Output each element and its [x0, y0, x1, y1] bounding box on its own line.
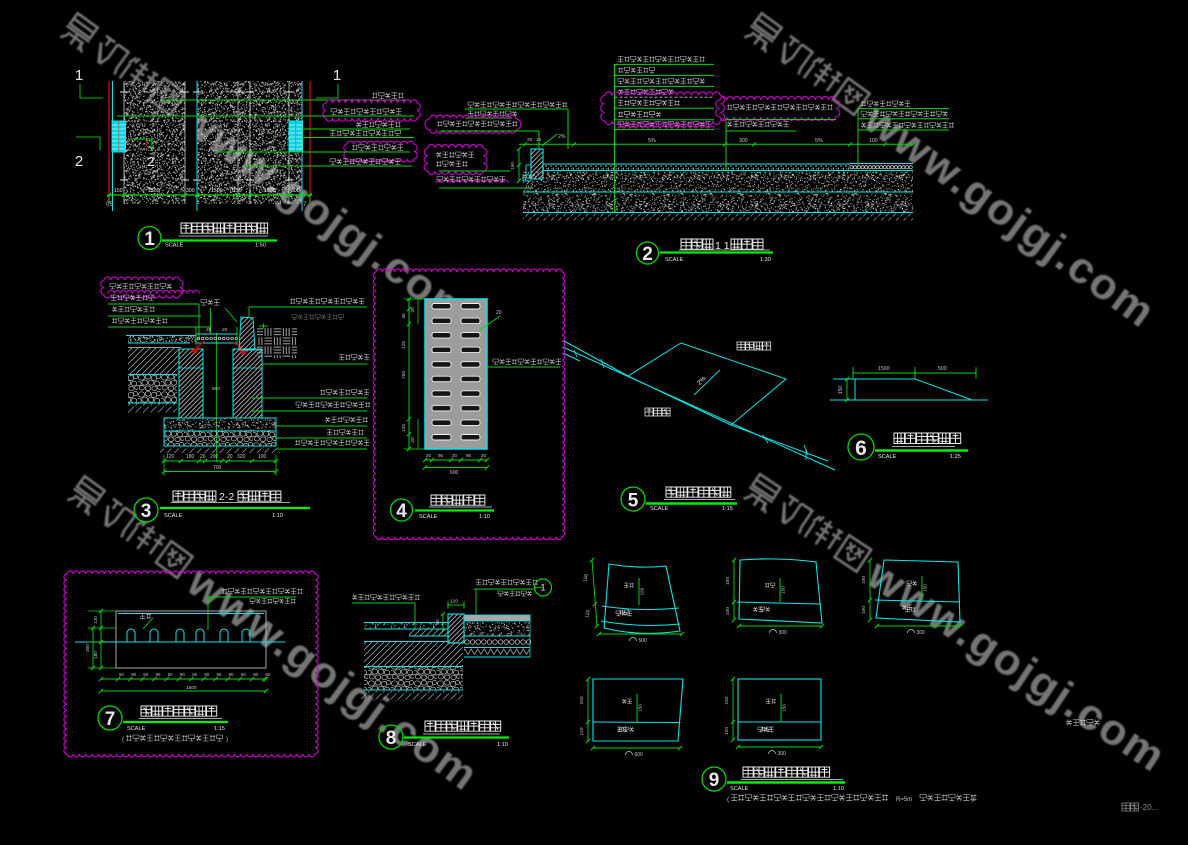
svg-text:2-2: 2-2 [219, 491, 234, 503]
svg-text:300: 300 [779, 630, 788, 636]
svg-text:SCALE: SCALE [165, 243, 184, 249]
svg-text:20: 20 [410, 437, 416, 443]
svg-text:150: 150 [923, 584, 928, 592]
svg-text:SCALE: SCALE [878, 454, 897, 460]
svg-text:20: 20 [481, 453, 487, 458]
svg-text:20: 20 [222, 327, 228, 333]
svg-text:7: 7 [105, 709, 116, 730]
svg-text:120: 120 [724, 727, 730, 735]
svg-text:600: 600 [450, 470, 459, 476]
svg-text:150: 150 [233, 188, 242, 194]
svg-text:20: 20 [527, 137, 533, 143]
svg-text:60: 60 [143, 672, 148, 677]
svg-text:100: 100 [725, 577, 731, 585]
svg-text:SCALE: SCALE [730, 786, 749, 792]
svg-text:120: 120 [166, 454, 175, 460]
svg-text:150: 150 [510, 162, 515, 170]
svg-text:20: 20 [496, 310, 502, 316]
svg-text:1: 1 [333, 67, 341, 84]
svg-text:1:15: 1:15 [214, 726, 225, 732]
svg-text:5: 5 [628, 491, 639, 512]
svg-text:60: 60 [217, 672, 222, 677]
svg-text:1500: 1500 [264, 188, 276, 194]
svg-text:300: 300 [917, 630, 926, 636]
svg-text:1500: 1500 [878, 366, 890, 372]
svg-text:1500: 1500 [186, 685, 197, 691]
svg-text:SCALE: SCALE [164, 513, 183, 519]
svg-text:125: 125 [401, 424, 407, 432]
svg-text:95: 95 [438, 453, 444, 458]
svg-text:SCALE: SCALE [665, 257, 684, 263]
svg-text:20: 20 [452, 453, 458, 458]
svg-text:20: 20 [410, 307, 416, 313]
svg-text:05: 05 [106, 202, 113, 208]
svg-text:20: 20 [426, 453, 432, 458]
svg-text:100: 100 [861, 606, 867, 614]
svg-text:150: 150 [838, 386, 844, 395]
svg-text:): ) [226, 737, 228, 743]
svg-text:150: 150 [640, 587, 645, 595]
svg-text:300: 300 [85, 644, 90, 652]
svg-text:750: 750 [401, 371, 407, 379]
svg-text:120: 120 [93, 616, 98, 624]
svg-text:100: 100 [258, 454, 267, 460]
svg-text:90: 90 [229, 672, 234, 677]
svg-text:150: 150 [579, 696, 585, 704]
svg-text:1:30: 1:30 [760, 257, 771, 263]
svg-text:700: 700 [213, 465, 222, 471]
svg-text:SCALE: SCALE [408, 742, 427, 748]
svg-text:2: 2 [147, 154, 154, 169]
svg-text:1: 1 [144, 229, 155, 250]
svg-text:90: 90 [204, 672, 209, 677]
svg-text:60: 60 [192, 672, 197, 677]
svg-text:150: 150 [782, 704, 787, 712]
svg-text:100: 100 [725, 607, 731, 615]
svg-text:90: 90 [253, 672, 258, 677]
svg-text:9: 9 [709, 770, 720, 791]
svg-text:SCALE: SCALE [650, 506, 669, 512]
svg-text:1:10: 1:10 [833, 786, 844, 792]
svg-text:95: 95 [466, 453, 472, 458]
svg-text:1:15: 1:15 [722, 506, 733, 512]
svg-text:2: 2 [75, 153, 83, 170]
svg-text:60: 60 [241, 672, 246, 677]
svg-text:15: 15 [536, 137, 542, 143]
svg-text:4: 4 [396, 501, 407, 522]
svg-text:8: 8 [386, 728, 397, 749]
svg-text:60: 60 [265, 672, 270, 677]
svg-text:320: 320 [237, 454, 246, 460]
svg-text:2%: 2% [558, 134, 566, 140]
svg-text:600: 600 [635, 752, 644, 758]
svg-text:500: 500 [639, 638, 648, 644]
svg-text:600: 600 [212, 386, 220, 392]
svg-text:R=5m: R=5m [896, 797, 912, 803]
svg-text:1:50: 1:50 [255, 243, 266, 249]
svg-text:150: 150 [724, 696, 730, 704]
svg-text:(: ( [122, 737, 124, 743]
svg-text:1500: 1500 [148, 188, 160, 194]
svg-text:100: 100 [869, 138, 878, 144]
svg-text:125: 125 [401, 341, 407, 349]
svg-text:SCALE: SCALE [419, 514, 438, 520]
svg-text:200: 200 [210, 454, 219, 460]
svg-text:1500: 1500 [211, 188, 223, 194]
svg-text:3: 3 [141, 501, 152, 522]
svg-text:60: 60 [119, 672, 124, 677]
svg-text:300: 300 [739, 138, 748, 144]
svg-text:180: 180 [93, 651, 98, 659]
svg-text:1:25: 1:25 [950, 454, 961, 460]
svg-text:2: 2 [642, 244, 653, 265]
svg-text:5%: 5% [648, 138, 656, 144]
svg-text:150: 150 [638, 704, 643, 712]
svg-text:90: 90 [156, 672, 161, 677]
svg-text:20: 20 [206, 327, 212, 333]
svg-text:120: 120 [579, 727, 585, 735]
svg-text:500: 500 [938, 366, 947, 372]
svg-text:6: 6 [855, 437, 867, 460]
svg-text:90: 90 [131, 672, 136, 677]
svg-text:150: 150 [114, 188, 123, 194]
svg-text:1:10: 1:10 [479, 514, 490, 520]
svg-text:1: 1 [75, 67, 83, 84]
svg-text:300: 300 [778, 751, 787, 757]
svg-text:90: 90 [180, 672, 185, 677]
svg-text:300: 300 [291, 188, 300, 194]
svg-text:1:10: 1:10 [497, 742, 508, 748]
svg-text:1:10: 1:10 [272, 513, 283, 519]
svg-text:): ) [972, 796, 974, 803]
svg-text:5%: 5% [815, 138, 823, 144]
svg-text:30: 30 [401, 313, 407, 319]
svg-text:120: 120 [450, 599, 458, 605]
svg-text:SCALE: SCALE [127, 726, 146, 732]
svg-text:180: 180 [186, 454, 195, 460]
svg-text:150: 150 [781, 586, 786, 594]
svg-text:300: 300 [186, 188, 195, 194]
svg-text:100: 100 [861, 576, 867, 584]
svg-text:-20...: -20... [1140, 803, 1158, 812]
svg-text:60: 60 [168, 672, 173, 677]
